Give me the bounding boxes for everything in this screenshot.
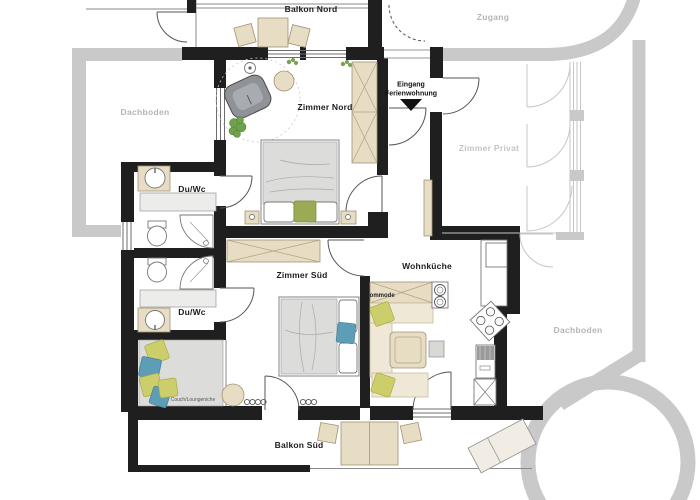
label-zimmer-sued: Zimmer Süd [276,270,327,280]
table [258,18,288,47]
balkon-nord-furniture [234,18,310,47]
label-duwc-lower: Du/Wc [178,307,205,317]
balkon-sued-furniture [318,419,536,473]
label-kommode: Kommode [365,293,394,299]
wardrobe [352,62,377,163]
cabinet [486,243,507,267]
bathroom-upper [138,166,216,248]
floorplan: Balkon Nord Zugang Dachboden Zimmer Nord… [0,0,700,500]
cabinet-x [474,379,496,405]
label-balkon-nord: Balkon Nord [285,4,338,14]
toilet [148,258,167,282]
chair [400,422,421,443]
porch-door [157,12,187,42]
blue-cushion [336,322,356,344]
label-dachboden-left: Dachboden [121,107,170,117]
bath-lower-door [220,288,254,322]
stool [222,384,244,406]
shower [180,256,213,289]
zimmer-privat-door [443,78,479,114]
vestibule-door [389,108,426,145]
green-cushion [294,201,316,222]
label-zugang: Zugang [477,12,510,22]
zimmer-sued-door [328,240,364,276]
radiators [244,399,316,404]
bed-sued [279,297,359,376]
turret-curve [528,382,688,500]
chair [288,25,310,48]
balcony-sued-door-left [265,376,299,410]
kitchen-sink [432,282,448,308]
label-eingang-line2: Ferienwohnung [385,90,437,99]
fridge [476,345,495,378]
bench-left [370,323,392,377]
dining-table [390,332,426,368]
pillow [158,378,178,398]
entrance-arrow-icon [400,99,422,111]
hall-shelf [424,180,432,236]
label-zimmer-privat: Zimmer Privat [459,143,520,153]
label-eingang-line1: Eingang [385,81,437,90]
bathroom-lower [138,256,216,332]
label-balkon-sued: Balkon Süd [275,440,324,450]
label-wohnkueche: Wohnküche [402,261,452,271]
label-couch: Couch/Loungeniche [171,397,215,403]
armchair [221,72,274,121]
pillow [339,343,357,373]
bathtub [140,193,216,211]
plant [229,117,246,138]
entry-door-dashed [389,5,425,41]
shower [180,215,213,248]
toilet [148,221,167,246]
bed-nord [261,140,339,224]
bath-upper-door [220,176,252,208]
floorplan-drawing [0,0,700,500]
stool [429,341,444,357]
side-table [274,71,294,91]
zimmer-nord-door [346,176,382,212]
label-zimmer-nord: Zimmer Nord [297,102,352,112]
pillow [264,202,294,222]
label-eingang: Eingang Ferienwohnung [385,81,437,99]
zimmer-nord-furniture [216,58,377,224]
window-plants [287,58,352,67]
label-dachboden-right: Dachboden [554,325,603,335]
bathtub [140,290,216,307]
chair [234,23,256,46]
label-duwc-upper: Du/Wc [178,184,205,194]
zimmer-sued-furniture [227,240,359,376]
